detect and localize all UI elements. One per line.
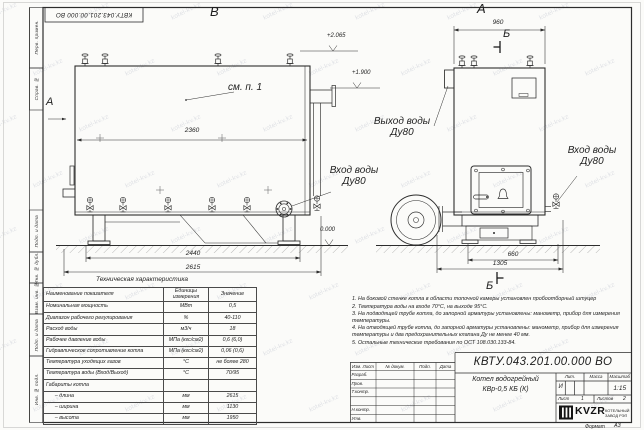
- margin-label: Инв. № подл.: [34, 373, 39, 405]
- centerline-marks: [96, 134, 272, 194]
- tech-table-cell: 70/95: [209, 369, 257, 380]
- tech-table-row: Температура воды (Вход/Выход)°С70/95: [44, 369, 257, 380]
- furnace-door: [471, 166, 531, 214]
- note-line: 1. На боковой стенке котла в области топ…: [352, 296, 628, 303]
- row-label-prov: Пров.: [352, 381, 377, 386]
- tech-table-cell: [164, 380, 209, 391]
- tech-table-cell: Диапазон рабочего регулирования: [44, 313, 164, 324]
- tech-col-name: Наименование показателя: [44, 288, 164, 302]
- kvzr-logo-icon: [559, 406, 573, 420]
- margin-label: Подп. и дата: [34, 319, 39, 351]
- product-name-line2: КВр-0,5 КБ (К): [456, 386, 555, 393]
- col-header-izm-list: Изм. Лист: [350, 364, 376, 369]
- sheet-value: 1: [581, 396, 584, 402]
- tech-table-cell: Температура уходящих газов: [44, 357, 164, 368]
- tech-table-cell: Расход воды: [44, 324, 164, 335]
- view-b-label: В: [210, 5, 219, 19]
- tech-table-cell: 0,06 (0,6): [209, 346, 257, 357]
- margin-cell-sprav-no: Справ. №: [30, 68, 44, 110]
- row-label-utv: Утв.: [352, 416, 377, 421]
- tech-table-cell: %: [164, 313, 209, 324]
- tech-table-cell: Габариты котла: [44, 380, 164, 391]
- lit-value: И: [556, 384, 565, 390]
- elevation-1900: +1.900: [352, 70, 371, 76]
- outlet-water-label: Выход воды Ду80: [366, 117, 438, 138]
- section-b-label-top: Б: [503, 29, 510, 41]
- product-name-line1: Котел водогрейный: [456, 376, 555, 383]
- row-label-razrab: Разраб.: [352, 372, 377, 377]
- tech-table-cell: Рабочее давление воды: [44, 335, 164, 346]
- note-line: 2. Температура воды на входе 70°С, на вы…: [352, 304, 628, 311]
- tech-table-row: Диапазон рабочего регулирования%40-110: [44, 313, 257, 324]
- tech-col-units: Единицы измерения: [164, 288, 209, 302]
- mass-header: Масса: [584, 374, 608, 379]
- note-line: 3. На подводящей трубе котла, до запорно…: [352, 311, 628, 324]
- tech-table-cell: мм: [164, 413, 209, 424]
- col-header-doc: № докум.: [376, 364, 414, 369]
- tech-table-cell: мм: [164, 402, 209, 413]
- view-direction-a-label: А: [46, 97, 53, 109]
- see-note-label: см. п. 1: [228, 83, 262, 94]
- inlet-water-side-line1: Вход воды: [322, 166, 386, 177]
- outlet-flange: [445, 70, 455, 88]
- door-latch: [498, 189, 508, 199]
- tech-table-row: Рабочее давление водыМПа (кгс/см2)0,6 (6…: [44, 335, 257, 346]
- tech-table-cell: мм: [164, 391, 209, 402]
- margin-label: Взам. инв. №: [34, 282, 39, 314]
- drawing-sheet: kotel-kv.kzkotel-kv.kzkotel-kv.kzkotel-k…: [0, 0, 644, 430]
- sheet-label: Лист: [558, 396, 569, 401]
- tech-table-cell: [209, 380, 257, 391]
- tech-table: Наименование показателя Единицы измерени…: [43, 287, 257, 425]
- dim-960: 960: [473, 20, 523, 27]
- tech-table-cell: МПа (кгс/см2): [164, 346, 209, 357]
- dim-2360: 2360: [162, 128, 222, 135]
- tech-table-row: – высотамм1950: [44, 413, 257, 424]
- inlet-water-label-front: Вход воды Ду80: [556, 146, 628, 167]
- outlet-water-line1: Выход воды: [366, 117, 438, 128]
- lit-header: Лит.: [556, 374, 584, 379]
- tech-table-cell: Гидравлическое сопротивление котла: [44, 346, 164, 357]
- tech-table-cell: °С: [164, 369, 209, 380]
- col-header-podp: Подп.: [414, 364, 436, 369]
- kvzr-logo-text: KVZR: [575, 405, 605, 417]
- inlet-water-front-line1: Вход воды: [556, 146, 628, 157]
- tech-table-row: – ширинамм1130: [44, 402, 257, 413]
- elevation-zero: 0.000: [320, 227, 335, 233]
- tech-table-cell: 0,6 (6,0): [209, 335, 257, 346]
- tech-table-cell: Температура воды (Вход/Выход): [44, 369, 164, 380]
- inlet-water-side-line2: Ду80: [322, 177, 386, 188]
- sheets-label: Листов: [597, 396, 613, 401]
- dim-660: 660: [495, 252, 531, 259]
- margin-label: Подп. и дата: [34, 215, 39, 247]
- blower-fan: [391, 195, 462, 245]
- row-label-tkontr: Т.контр.: [352, 389, 377, 394]
- tech-table-cell: 0,5: [209, 302, 257, 313]
- tech-table-cell: 2615: [209, 391, 257, 402]
- dim-2615: 2615: [164, 265, 222, 272]
- inlet-water-label-side: Вход воды Ду80: [322, 166, 386, 187]
- margin-cell-inv-podl: Инв. № подл.: [30, 356, 44, 423]
- tech-table-row: Расход водым3/ч18: [44, 324, 257, 335]
- scale-value: 1:15: [608, 385, 632, 392]
- format-value: А3: [614, 423, 621, 429]
- boiler-front-view: [391, 56, 559, 245]
- view-a-label: А: [477, 2, 486, 16]
- tech-table-cell: не более 280: [209, 357, 257, 368]
- col-header-data: Дата: [436, 364, 455, 369]
- technical-notes: 1. На боковой стенке котла в области топ…: [352, 296, 628, 347]
- tech-table-cell: – длина: [44, 391, 164, 402]
- doc-number-top-stamp: КВТУ.043.201.00.000 ВО: [45, 7, 143, 22]
- tech-table-cell: Номинальная мощность: [44, 302, 164, 313]
- margin-label: Справ. №: [34, 77, 39, 100]
- tech-table-row: – длинамм2615: [44, 391, 257, 402]
- tech-table-cell: МВт: [164, 302, 209, 313]
- tech-table-cell: МПа (кгс/см2): [164, 335, 209, 346]
- tech-table-cell: 40-110: [209, 313, 257, 324]
- boiler-base: [462, 215, 538, 244]
- control-panel: [512, 78, 536, 98]
- tech-table-cell: – высота: [44, 413, 164, 424]
- tech-table-cell: м3/ч: [164, 324, 209, 335]
- logo-subtitle-line2: ЗАВОД РЭП: [605, 413, 627, 418]
- tech-col-value: Значение: [209, 288, 257, 302]
- note-line: 5. Остальные технические требования по О…: [352, 340, 628, 347]
- scale-header: Масштаб: [608, 374, 632, 379]
- tech-table-row: Температура уходящих газов°Сне более 280: [44, 357, 257, 368]
- format-label: Формат: [585, 424, 605, 430]
- dim-1305: 1305: [482, 261, 518, 268]
- tech-table-cell: 18: [209, 324, 257, 335]
- tech-table-title: Техническая характеристика: [43, 277, 241, 284]
- doc-number: КВТУ.043.201.00.000 ВО: [455, 353, 631, 371]
- tech-table-cell: °С: [164, 357, 209, 368]
- tech-table-cell: 1950: [209, 413, 257, 424]
- margin-label: Инв. № дубл.: [34, 252, 39, 284]
- margin-cell-inv-dubl: Инв. № дубл.: [30, 252, 44, 283]
- dim-2440: 2440: [165, 251, 221, 258]
- sheets-value: 2: [623, 396, 626, 402]
- inlet-water-front-line2: Ду80: [556, 157, 628, 168]
- elevation-2065: +2.065: [327, 33, 346, 39]
- row-label-nkontr: Н.контр.: [352, 407, 377, 412]
- tech-table-cell: – ширина: [44, 402, 164, 413]
- boiler-side-view: [63, 54, 336, 245]
- tech-table-cell: 1130: [209, 402, 257, 413]
- outlet-water-line2: Ду80: [366, 128, 438, 139]
- section-b-label-bottom: Б: [486, 281, 493, 293]
- note-line: 4. На отводящей трубе котла, до запорной…: [352, 325, 628, 338]
- margin-label: Перв. примен.: [34, 20, 39, 54]
- tech-table-row: Номинальная мощностьМВт0,5: [44, 302, 257, 313]
- margin-cell-podp-data-1: Подп. и дата: [30, 210, 44, 252]
- tech-table-row: Габариты котла: [44, 380, 257, 391]
- tech-table-row: Гидравлическое сопротивление котлаМПа (к…: [44, 346, 257, 357]
- tech-table-header-row: Наименование показателя Единицы измерени…: [44, 288, 257, 302]
- margin-cell-podp-data-2: Подп. и дата: [30, 314, 44, 356]
- margin-cell-vzam-inv: Взам. инв. №: [30, 283, 44, 314]
- margin-cell-perv-primen: Перв. примен.: [30, 7, 44, 68]
